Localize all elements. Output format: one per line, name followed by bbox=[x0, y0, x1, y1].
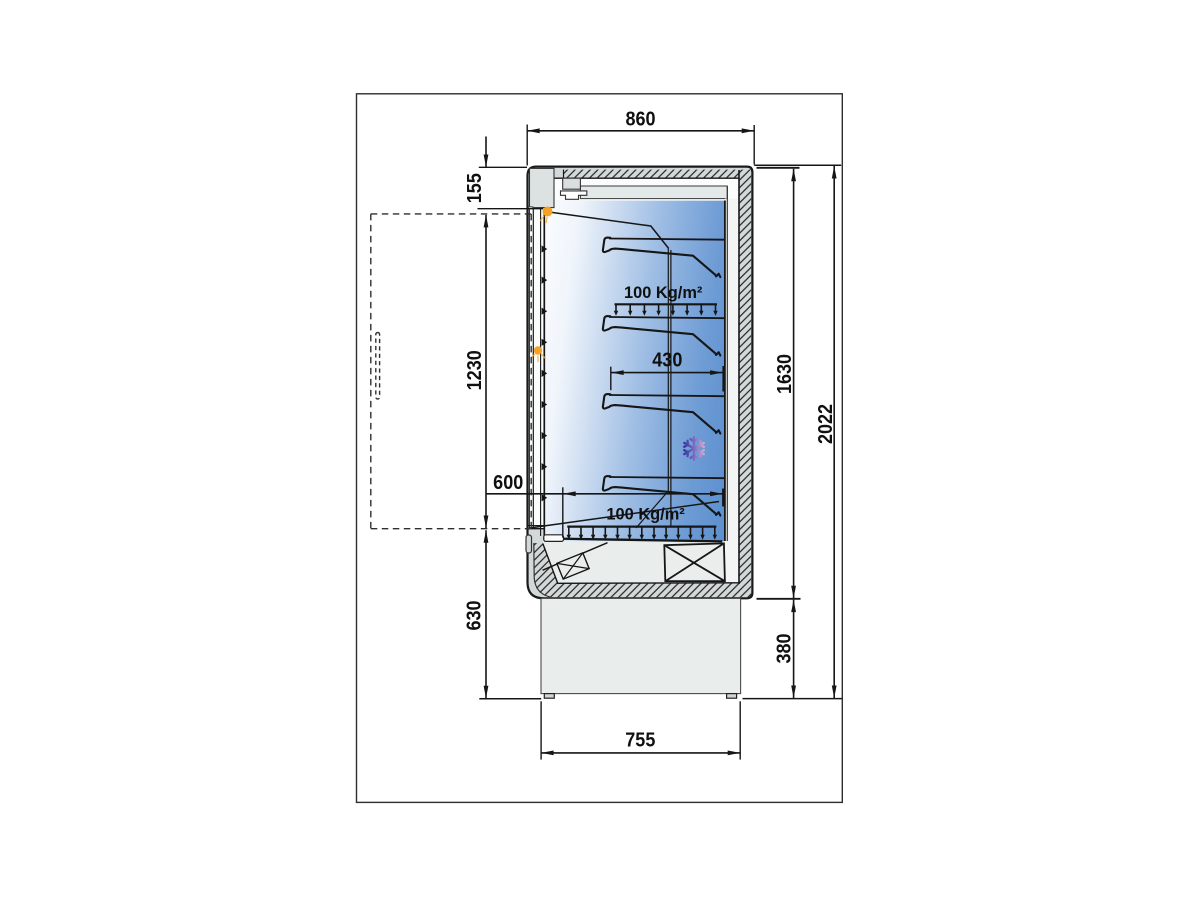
svg-text:430: 430 bbox=[652, 349, 682, 371]
svg-text:600: 600 bbox=[493, 472, 523, 494]
svg-text:380: 380 bbox=[774, 633, 796, 663]
svg-text:755: 755 bbox=[625, 730, 655, 752]
svg-text:100 Kg/m²: 100 Kg/m² bbox=[606, 506, 685, 524]
svg-text:630: 630 bbox=[464, 600, 486, 630]
svg-text:2022: 2022 bbox=[815, 404, 837, 444]
svg-text:100 Kg/m²: 100 Kg/m² bbox=[624, 284, 703, 302]
svg-text:1230: 1230 bbox=[464, 350, 486, 390]
svg-text:860: 860 bbox=[625, 108, 655, 130]
svg-text:155: 155 bbox=[464, 173, 486, 203]
svg-text:1630: 1630 bbox=[774, 354, 796, 394]
